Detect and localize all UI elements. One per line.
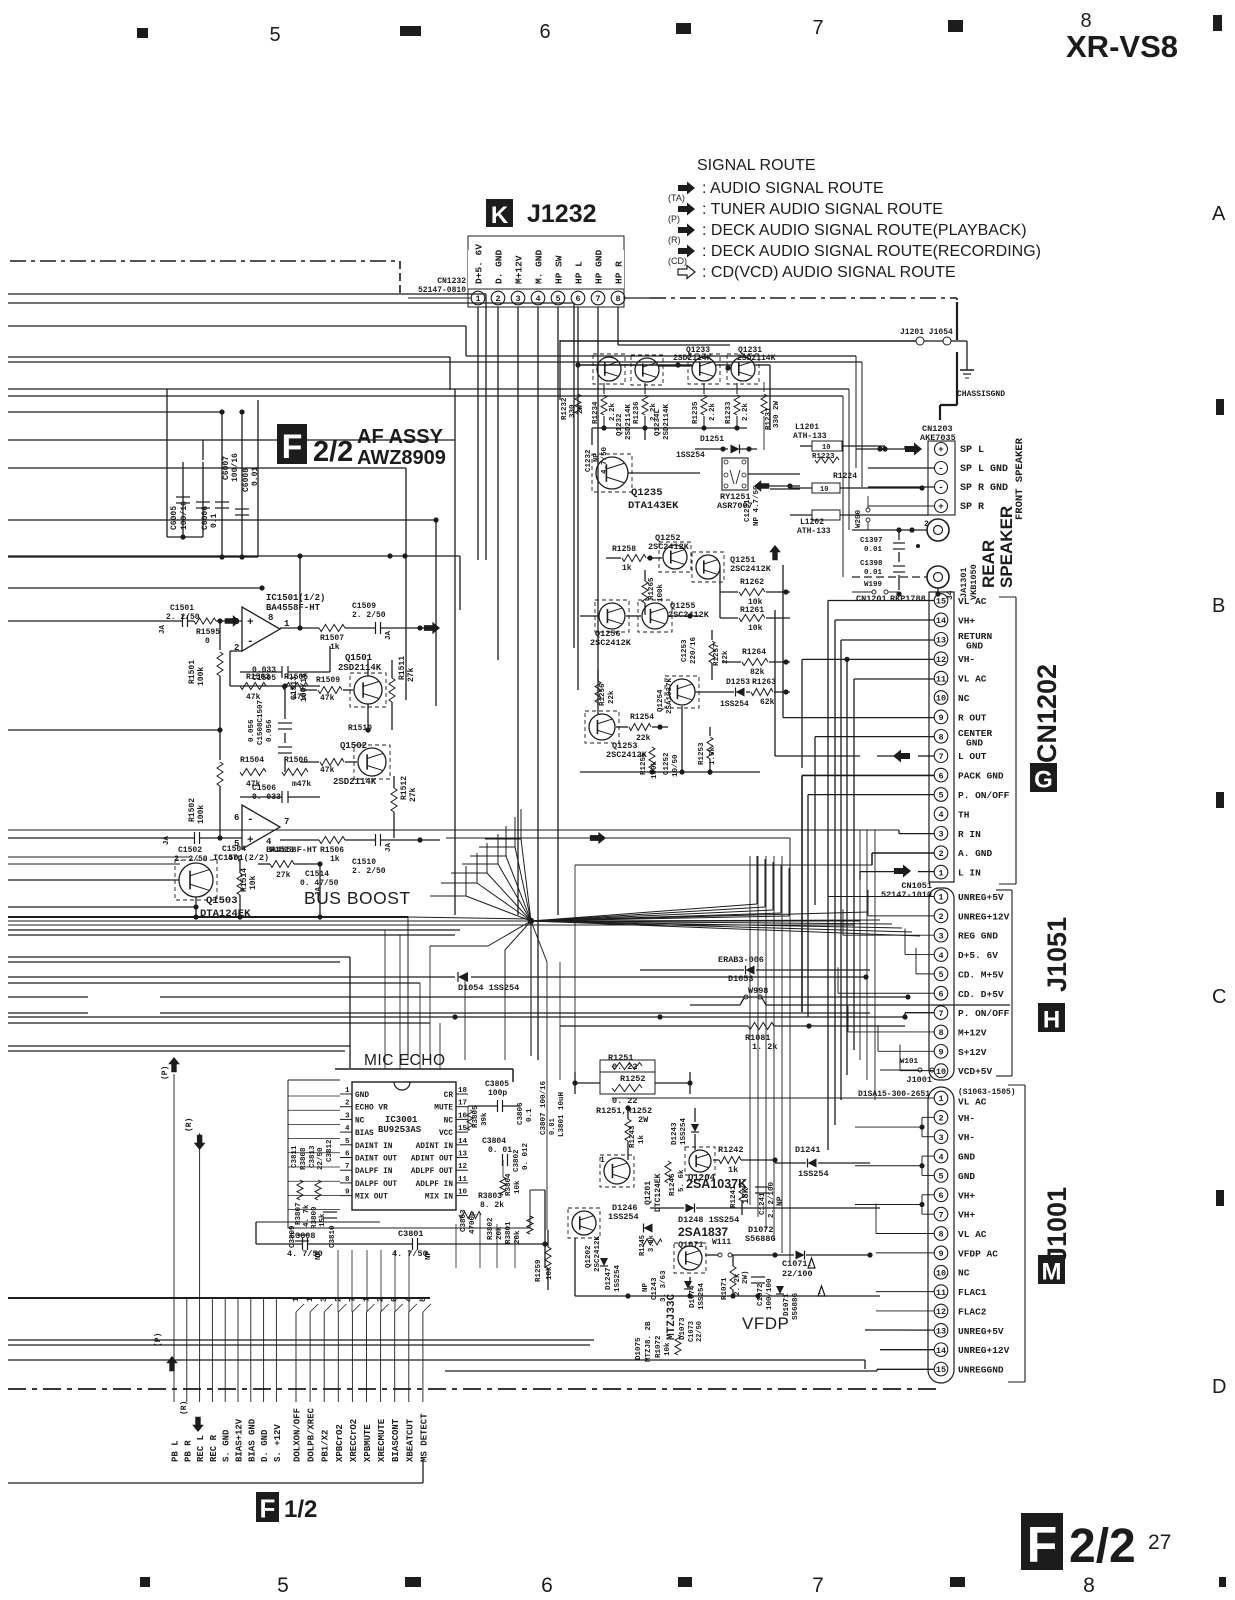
svg-text:6: 6 (234, 813, 239, 823)
svg-text:NP 4.7/50: NP 4.7/50 (753, 485, 761, 526)
svg-text:1k: 1k (638, 1134, 646, 1144)
svg-text:ATH-133: ATH-133 (797, 527, 831, 536)
svg-text:XRECCrO2: XRECCrO2 (349, 1419, 359, 1462)
svg-text:C3812: C3812 (326, 1139, 334, 1162)
svg-text:DTA124EK: DTA124EK (200, 908, 251, 920)
svg-text:R1241: R1241 (730, 1185, 738, 1208)
svg-text:B: B (1212, 595, 1225, 617)
svg-text:Q1232: Q1232 (616, 413, 624, 436)
svg-text:4. 7k: 4. 7k (303, 1204, 311, 1227)
svg-text:D. GND: D. GND (494, 249, 505, 284)
svg-text:F: F (260, 1494, 276, 1524)
svg-text:C3804: C3804 (482, 1137, 506, 1146)
svg-text:17: 17 (458, 1100, 467, 1108)
svg-text:JA: JA (385, 630, 393, 640)
svg-text:22/50: 22/50 (696, 1321, 704, 1342)
svg-text:3: 3 (320, 1297, 329, 1302)
svg-text:CN1232: CN1232 (437, 277, 466, 286)
svg-text:XRECMUTE: XRECMUTE (377, 1418, 387, 1462)
svg-text:R1509: R1509 (316, 676, 340, 685)
svg-text:P. ON/OFF: P. ON/OFF (958, 790, 1010, 801)
svg-text:C3807 100/16: C3807 100/16 (540, 1080, 548, 1135)
svg-text:(P): (P) (668, 214, 680, 224)
svg-text:5: 5 (269, 24, 280, 46)
svg-text:C3803: C3803 (460, 1209, 468, 1232)
svg-text:HP R: HP R (614, 261, 625, 284)
svg-text:R1512: R1512 (400, 776, 409, 800)
svg-text:(R): (R) (185, 1118, 194, 1132)
svg-text:1: 1 (938, 1094, 943, 1104)
svg-text:SPEAKER: SPEAKER (997, 506, 1016, 588)
svg-text:C1501: C1501 (170, 604, 194, 613)
svg-text:4: 4 (938, 810, 943, 820)
svg-text:3.9k: 3.9k (648, 1235, 656, 1252)
svg-text:F: F (282, 428, 303, 466)
svg-text:14: 14 (458, 1138, 468, 1146)
svg-text:REC L: REC L (196, 1435, 206, 1462)
svg-text:DTA143EK: DTA143EK (628, 500, 679, 512)
svg-text:PACK GND: PACK GND (958, 771, 1004, 782)
svg-text:FLAC1: FLAC1 (958, 1287, 987, 1298)
svg-text:W998: W998 (748, 986, 768, 996)
svg-text:UNREG+12V: UNREG+12V (958, 1345, 1010, 1356)
svg-text:D1054 1SS254: D1054 1SS254 (458, 983, 519, 993)
svg-text:10: 10 (820, 486, 828, 494)
svg-text:DAINT IN: DAINT IN (355, 1143, 393, 1151)
svg-text:R1502: R1502 (188, 798, 197, 822)
svg-text:5: 5 (938, 1172, 943, 1182)
svg-text:11: 11 (936, 1288, 946, 1298)
svg-text:+: + (938, 502, 943, 512)
svg-text:VH-: VH- (958, 1132, 975, 1143)
svg-text:R1263: R1263 (752, 678, 776, 687)
svg-text:XPBCrO2: XPBCrO2 (335, 1424, 345, 1462)
svg-text:2/2: 2/2 (313, 436, 353, 468)
svg-text:NP: NP (642, 1282, 650, 1292)
svg-text:2. 2/50: 2. 2/50 (174, 855, 208, 864)
svg-text:UNREG+5V: UNREG+5V (958, 892, 1004, 903)
svg-text:W200: W200 (855, 509, 863, 528)
svg-text:GND: GND (355, 1092, 369, 1100)
svg-text:AF ASSY: AF ASSY (357, 426, 444, 448)
svg-text:PB1/X2: PB1/X2 (321, 1430, 331, 1462)
svg-text:R1243: R1243 (629, 1125, 637, 1148)
svg-text:2.2k: 2.2k (742, 402, 750, 421)
svg-text:JA: JA (385, 842, 393, 852)
svg-text:MUTE: MUTE (434, 1105, 453, 1113)
svg-text:-: - (247, 814, 254, 826)
svg-text:: CD(VCD) AUDIO SIGNAL ROUTE: : CD(VCD) AUDIO SIGNAL ROUTE (702, 264, 956, 281)
svg-text:1SS254: 1SS254 (680, 1117, 688, 1145)
svg-text:XPBMUTE: XPBMUTE (363, 1424, 373, 1462)
svg-text:22k: 22k (636, 734, 651, 743)
svg-text:100k: 100k (197, 667, 206, 686)
svg-text:VL AC: VL AC (958, 1097, 987, 1108)
svg-text:6: 6 (539, 21, 550, 43)
svg-text:6: 6 (575, 294, 580, 304)
svg-text:11: 11 (936, 674, 946, 684)
svg-text:C1073: C1073 (688, 1321, 696, 1342)
svg-text:7: 7 (938, 1009, 943, 1019)
svg-text:VCD+5V: VCD+5V (958, 1066, 993, 1077)
svg-text:5. 6k: 5. 6k (678, 1169, 686, 1192)
svg-text:4. 7/50: 4. 7/50 (392, 1249, 428, 1259)
svg-text:IC3001: IC3001 (385, 1115, 418, 1125)
svg-text:13: 13 (936, 1327, 946, 1337)
svg-text:R1252: R1252 (620, 1074, 646, 1084)
svg-text:R1234: R1234 (592, 401, 600, 424)
svg-text:27: 27 (1148, 1531, 1171, 1554)
svg-text:Q1201: Q1201 (644, 1181, 653, 1205)
svg-text:9: 9 (938, 713, 943, 723)
svg-text:C6005: C6005 (170, 506, 179, 530)
svg-text:C1241: C1241 (759, 1192, 767, 1215)
svg-text:1: 1 (938, 893, 943, 903)
svg-text:R1262: R1262 (740, 578, 764, 587)
svg-text:2W): 2W) (742, 1270, 750, 1284)
svg-text:HP L: HP L (574, 261, 585, 284)
svg-text:ADLPF IN: ADLPF IN (416, 1181, 454, 1189)
svg-text:UNREG+12V: UNREG+12V (958, 911, 1010, 922)
svg-text:10k: 10k (748, 624, 763, 633)
svg-text:330 2W: 330 2W (773, 400, 781, 428)
svg-text:6: 6 (938, 771, 943, 781)
svg-text:R1513: R1513 (270, 846, 294, 855)
svg-text:D1243: D1243 (671, 1122, 679, 1145)
svg-text:L1201: L1201 (795, 423, 819, 432)
svg-text:3: 3 (938, 830, 943, 840)
svg-text:8: 8 (1083, 1574, 1095, 1597)
svg-text:2: 2 (938, 912, 943, 922)
svg-text:R1253: R1253 (698, 742, 706, 765)
svg-text:1/2: 1/2 (284, 1496, 317, 1523)
svg-text:A. GND: A. GND (958, 848, 993, 859)
svg-text:: AUDIO SIGNAL ROUTE: : AUDIO SIGNAL ROUTE (702, 180, 884, 197)
svg-text:4: 4 (938, 1152, 943, 1162)
svg-text:7: 7 (812, 17, 823, 39)
svg-text:D1075: D1075 (635, 1337, 643, 1360)
svg-text:8: 8 (938, 1028, 943, 1038)
svg-text:15: 15 (936, 597, 946, 607)
svg-text:2. 2/100: 2. 2/100 (768, 1181, 776, 1218)
svg-text:NC: NC (355, 1117, 365, 1125)
svg-text:R1242: R1242 (718, 1145, 744, 1155)
svg-text:R1507: R1507 (320, 634, 344, 643)
svg-text:R1504: R1504 (240, 756, 264, 765)
svg-text:A: A (1212, 203, 1226, 225)
svg-text:+: + (938, 445, 943, 455)
svg-text:K: K (491, 202, 509, 229)
svg-text:m47k: m47k (292, 780, 311, 789)
svg-text:R1261: R1261 (740, 606, 764, 615)
svg-text:D1251: D1251 (700, 435, 724, 444)
svg-text:HP SW: HP SW (554, 255, 565, 284)
svg-text:C3811: C3811 (291, 1145, 299, 1168)
svg-text:2. 2k: 2. 2k (734, 1273, 742, 1296)
svg-text:C: C (1212, 986, 1226, 1008)
svg-text:22k: 22k (608, 690, 616, 704)
svg-text:39k: 39k (481, 1112, 489, 1126)
svg-text:14: 14 (936, 616, 946, 626)
svg-text:8: 8 (615, 294, 620, 304)
svg-text:16: 16 (458, 1112, 468, 1120)
svg-text:(P): (P) (161, 1066, 170, 1080)
svg-text:5: 5 (938, 970, 943, 980)
svg-text:Q1202: Q1202 (585, 1245, 593, 1268)
svg-text:27k: 27k (409, 787, 418, 802)
svg-text:VL AC: VL AC (958, 596, 987, 607)
svg-text:C1508C1507: C1508C1507 (257, 700, 265, 745)
svg-text:CN1201: CN1201 (856, 594, 887, 604)
svg-text:J1001: J1001 (906, 1075, 932, 1085)
svg-text:D+5. 6V: D+5. 6V (474, 244, 485, 284)
svg-text:2. 2/50: 2. 2/50 (352, 867, 386, 876)
svg-text:1k: 1k (330, 855, 340, 864)
svg-text:D+5. 6V: D+5. 6V (958, 950, 998, 961)
svg-text:D1053: D1053 (728, 974, 754, 984)
svg-text:R3803: R3803 (478, 1192, 502, 1201)
svg-text:S. GND: S. GND (222, 1429, 232, 1462)
svg-text:8: 8 (419, 1297, 428, 1302)
svg-text:C1505: C1505 (252, 674, 276, 683)
svg-text:-: - (247, 636, 254, 648)
svg-text:C1502: C1502 (178, 846, 202, 855)
svg-text:M+12V: M+12V (958, 1027, 987, 1038)
svg-text:82k: 82k (750, 668, 765, 677)
svg-text:VL AC: VL AC (958, 1229, 987, 1240)
svg-text:R1510: R1510 (348, 724, 372, 733)
svg-text:D1248 1SS254: D1248 1SS254 (678, 1215, 739, 1225)
svg-text:Q1503: Q1503 (206, 895, 238, 907)
svg-text:VCC: VCC (439, 1130, 453, 1138)
svg-text:DOLPB/XREC: DOLPB/XREC (307, 1407, 317, 1462)
svg-text:2SD2114K: 2SD2114K (673, 354, 712, 363)
svg-text:L3801 10uH: L3801 10uH (558, 1092, 566, 1137)
svg-text:W101: W101 (900, 1058, 919, 1066)
svg-text:R1235: R1235 (692, 401, 700, 424)
svg-text:+: + (247, 835, 254, 847)
svg-text:2: 2 (924, 520, 929, 529)
svg-text:+: + (247, 617, 254, 629)
svg-text:P. ON/OFF: P. ON/OFF (958, 1008, 1010, 1019)
svg-text:0. 22: 0. 22 (612, 1096, 638, 1106)
svg-text:100/100: 100/100 (766, 1278, 774, 1310)
svg-text:10: 10 (822, 444, 830, 452)
svg-text:C3802: C3802 (513, 1149, 521, 1172)
svg-text:C6008: C6008 (242, 468, 251, 492)
svg-text:REAR: REAR (979, 540, 998, 588)
svg-text:52147-1010: 52147-1010 (881, 890, 932, 900)
svg-text:10: 10 (458, 1189, 468, 1197)
svg-text:J1051: J1051 (1042, 917, 1072, 992)
svg-text:7: 7 (938, 752, 943, 762)
svg-text:C1504: C1504 (222, 845, 246, 854)
svg-text:(TA): (TA) (668, 193, 685, 203)
svg-text:14: 14 (936, 1346, 946, 1356)
svg-text:7: 7 (284, 817, 289, 827)
svg-text:ADINT OUT: ADINT OUT (411, 1156, 453, 1164)
svg-text:10k: 10k (249, 875, 258, 890)
svg-text:JA: JA (159, 624, 167, 634)
svg-text:L OUT: L OUT (958, 751, 987, 762)
svg-text:!: ! (808, 1261, 812, 1269)
svg-text:CR: CR (444, 1092, 454, 1100)
svg-text:D: D (1212, 1376, 1226, 1398)
svg-text:DAINT OUT: DAINT OUT (355, 1156, 397, 1164)
svg-text:18: 18 (458, 1087, 468, 1095)
svg-text:5: 5 (345, 1138, 350, 1146)
svg-text:NP: NP (776, 1196, 785, 1206)
svg-text:S. +12V: S. +12V (273, 1424, 283, 1462)
svg-text:C1509: C1509 (352, 602, 376, 611)
svg-text:5: 5 (277, 1574, 289, 1597)
svg-text:-: - (938, 483, 943, 493)
svg-text:NC: NC (958, 1268, 970, 1279)
svg-text:(R): (R) (668, 235, 681, 245)
svg-text:1: 1 (292, 1297, 301, 1302)
svg-text:C1253: C1253 (681, 639, 689, 662)
svg-text:R1258: R1258 (612, 545, 636, 554)
svg-text:10/50: 10/50 (672, 754, 680, 777)
svg-text:R1511: R1511 (398, 656, 407, 680)
svg-text:R1501: R1501 (188, 660, 197, 684)
svg-text:J1201 J1054: J1201 J1054 (900, 328, 953, 337)
svg-text:15k: 15k (319, 1213, 327, 1227)
svg-text:D1247: D1247 (605, 1267, 613, 1290)
svg-text:BIAS: BIAS (355, 1130, 374, 1138)
svg-text:ASR7007: ASR7007 (717, 501, 753, 511)
svg-text:1SS254: 1SS254 (676, 451, 705, 460)
svg-text:D1253: D1253 (726, 678, 750, 687)
svg-text:C1397: C1397 (860, 537, 883, 545)
svg-text:R OUT: R OUT (958, 712, 987, 723)
svg-text:R1506: R1506 (284, 756, 308, 765)
svg-text:2SC2412K: 2SC2412K (590, 638, 632, 648)
svg-text:VFDP: VFDP (742, 1314, 789, 1333)
svg-text:15: 15 (936, 1365, 946, 1375)
svg-text:XR-VS8: XR-VS8 (1066, 29, 1178, 64)
svg-text:R1233: R1233 (725, 401, 733, 424)
svg-text:SP L GND: SP L GND (960, 464, 1008, 475)
svg-text:0.056: 0.056 (248, 719, 256, 742)
svg-text:BIAS GND: BIAS GND (247, 1418, 257, 1462)
svg-text:C3813: C3813 (309, 1145, 317, 1168)
svg-text:100/16: 100/16 (231, 453, 240, 482)
svg-text:Q1254: Q1254 (657, 689, 665, 712)
svg-text:R1246: R1246 (669, 1173, 677, 1196)
svg-text:BIAS+12V: BIAS+12V (235, 1418, 245, 1462)
svg-text:R1232: R1232 (561, 397, 569, 420)
svg-text:XBEATCUT: XBEATCUT (405, 1418, 415, 1462)
svg-text:J1232: J1232 (527, 200, 597, 228)
svg-text:10k: 10k (514, 1180, 522, 1194)
svg-text:: DECK AUDIO SIGNAL ROUTE(PLAY: : DECK AUDIO SIGNAL ROUTE(PLAYBACK) (702, 222, 1027, 239)
svg-text:R1595: R1595 (196, 628, 220, 637)
svg-text:AWZ8909: AWZ8909 (357, 447, 446, 469)
svg-text:3: 3 (938, 931, 943, 941)
svg-text:2SA1837: 2SA1837 (678, 1225, 728, 1239)
svg-text:8: 8 (345, 1176, 350, 1184)
svg-text:GND: GND (958, 1152, 975, 1163)
svg-text:IC1501(1/2): IC1501(1/2) (266, 593, 325, 603)
svg-text:W111: W111 (712, 1238, 731, 1247)
svg-text:H: H (1043, 1007, 1060, 1034)
svg-text:CHASSISGND: CHASSISGND (957, 390, 1005, 399)
svg-text:10: 10 (936, 1067, 946, 1077)
svg-text:CD. M+5V: CD. M+5V (958, 969, 1004, 980)
svg-text:9: 9 (938, 1048, 943, 1058)
svg-text:1k: 1k (622, 564, 632, 573)
svg-text:0.033: 0.033 (252, 666, 276, 675)
svg-text:R3802: R3802 (487, 1217, 495, 1240)
svg-text:2: 2 (345, 1100, 350, 1108)
svg-text:2: 2 (377, 1297, 386, 1302)
svg-text:R3801: R3801 (505, 1221, 513, 1244)
svg-text:8: 8 (268, 613, 273, 623)
svg-text:M. GND: M. GND (534, 249, 545, 284)
svg-text:PB R: PB R (183, 1440, 193, 1462)
svg-text:10k: 10k (664, 1342, 672, 1356)
svg-text:D1241: D1241 (795, 1145, 821, 1155)
svg-text:15: 15 (458, 1125, 468, 1133)
svg-text:REC R: REC R (209, 1434, 219, 1462)
svg-text:2SC2412K: 2SC2412K (730, 564, 772, 574)
svg-text:-: - (938, 464, 943, 474)
svg-text:6: 6 (938, 989, 943, 999)
svg-text:R1506: R1506 (320, 846, 344, 855)
svg-text:R1259: R1259 (535, 1259, 543, 1282)
svg-text:MIX IN: MIX IN (425, 1194, 453, 1202)
svg-text:C3806: C3806 (517, 1102, 525, 1125)
svg-text:4: 4 (405, 1297, 414, 1302)
svg-text:JA: JA (163, 835, 171, 845)
svg-text:SIGNAL ROUTE: SIGNAL ROUTE (697, 157, 816, 174)
svg-text:0.01: 0.01 (864, 546, 883, 554)
svg-text:VH+: VH+ (958, 1190, 975, 1201)
svg-text:C6006: C6006 (201, 506, 210, 530)
svg-text:MIC ECHO: MIC ECHO (364, 1052, 446, 1069)
svg-text:100k: 100k (657, 583, 665, 602)
svg-text:C1513: C1513 (290, 676, 299, 700)
svg-text:0: 0 (205, 637, 210, 646)
svg-text:M: M (1042, 1259, 1062, 1286)
svg-text:VFDP AC: VFDP AC (958, 1248, 998, 1259)
svg-text:S5688G: S5688G (745, 1234, 776, 1244)
svg-text:VH+: VH+ (958, 615, 975, 626)
svg-text:47k: 47k (320, 766, 335, 775)
svg-text:C3801: C3801 (398, 1229, 424, 1239)
svg-text:6: 6 (391, 1297, 400, 1302)
svg-text:R1072: R1072 (655, 1335, 663, 1358)
svg-text:DALPF IN: DALPF IN (355, 1168, 393, 1176)
svg-text:100p: 100p (488, 1089, 507, 1098)
svg-text:2SD2114K: 2SD2114K (625, 403, 633, 440)
svg-text:BU9253AS: BU9253AS (378, 1125, 422, 1135)
svg-text:1. 2k: 1. 2k (752, 1042, 778, 1052)
svg-text:SP R GND: SP R GND (960, 483, 1008, 494)
svg-text:1SS254: 1SS254 (608, 1212, 639, 1222)
svg-text:VH-: VH- (958, 654, 975, 665)
svg-text:13: 13 (936, 636, 946, 646)
svg-text:GND: GND (958, 1171, 975, 1182)
svg-text:8. 2k: 8. 2k (480, 1201, 504, 1210)
svg-text:1: 1 (600, 1156, 605, 1165)
svg-text:S+12V: S+12V (958, 1047, 987, 1058)
svg-text:6: 6 (541, 1574, 553, 1597)
svg-text:ERAB3-006: ERAB3-006 (718, 955, 764, 965)
svg-text:(R): (R) (180, 1401, 189, 1415)
svg-text:2: 2 (334, 1297, 343, 1302)
